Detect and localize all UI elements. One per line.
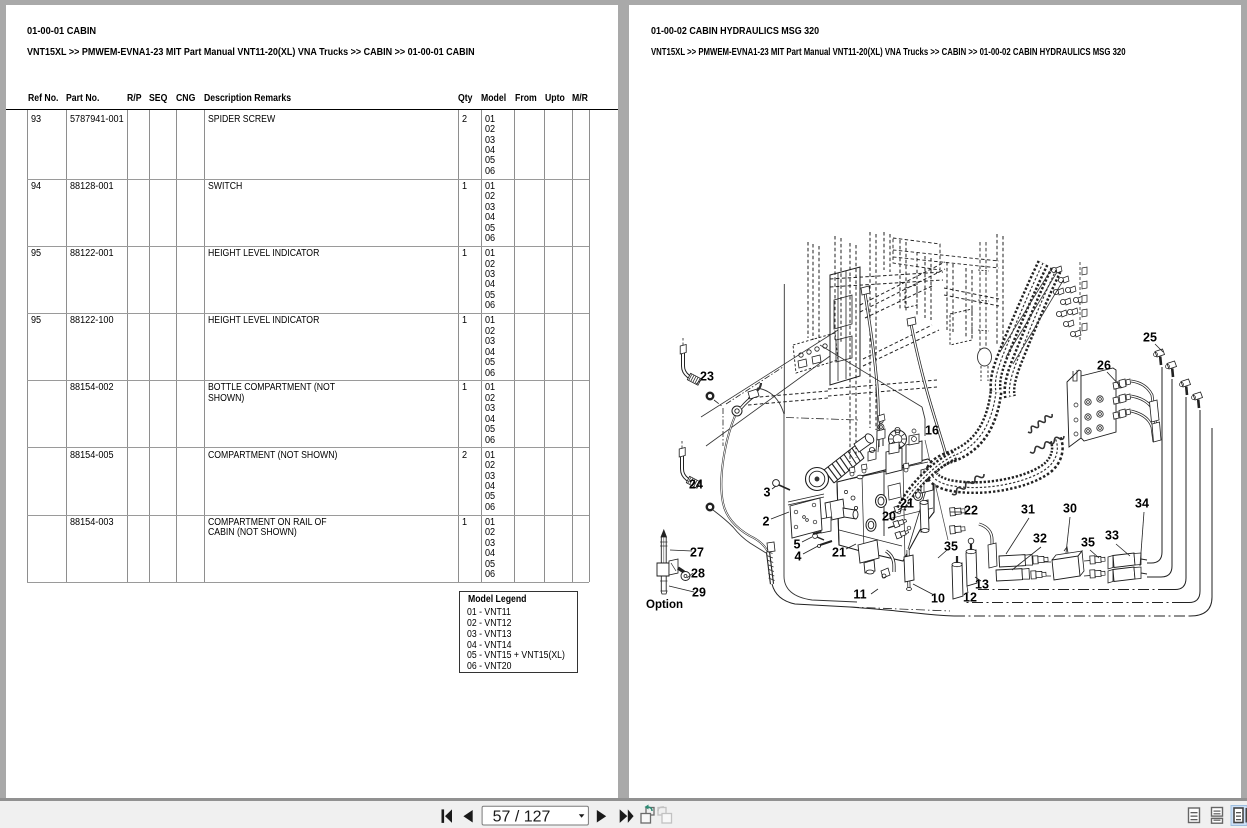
svg-text:57 / 127: 57 / 127 [493,808,551,825]
